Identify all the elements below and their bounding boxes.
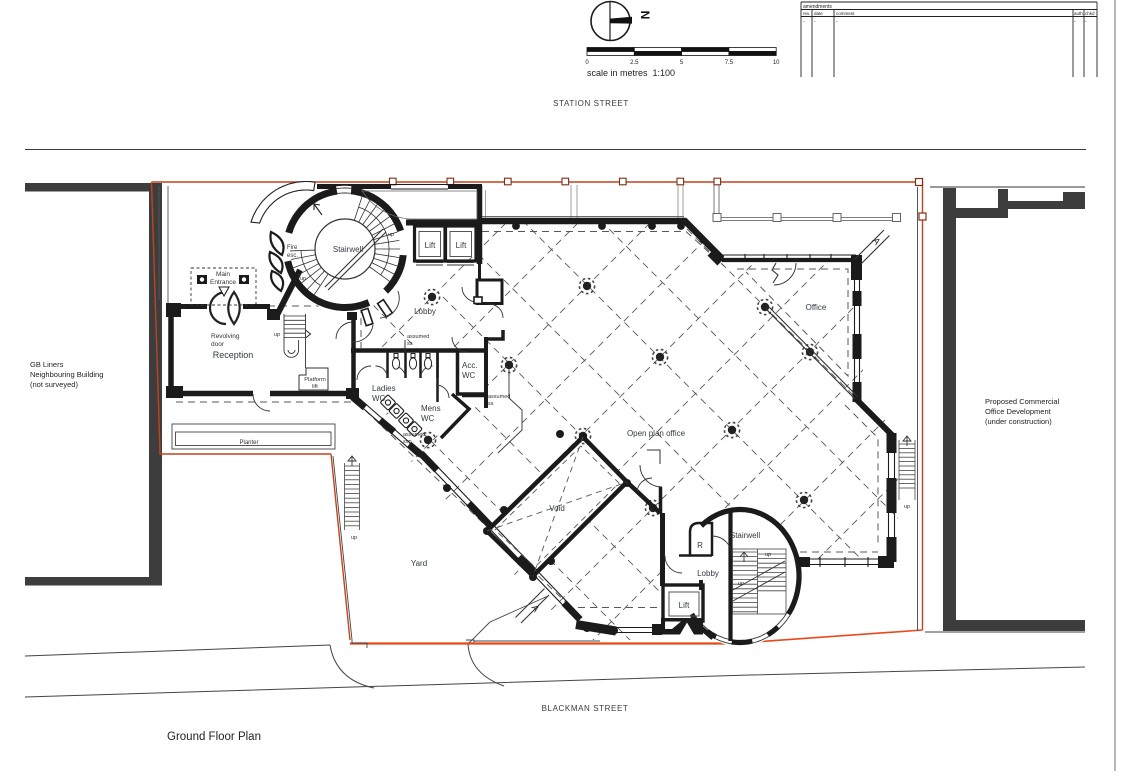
svg-text:date: date bbox=[814, 11, 823, 16]
svg-text:Ground Floor Plan: Ground Floor Plan bbox=[167, 731, 261, 743]
svg-text:10: 10 bbox=[773, 60, 780, 66]
svg-text:Office: Office bbox=[806, 303, 827, 312]
svg-text:esc.: esc. bbox=[287, 253, 298, 259]
svg-text:up: up bbox=[738, 581, 744, 587]
svg-text:auth.: auth. bbox=[1074, 11, 1084, 16]
svg-text:up: up bbox=[351, 535, 357, 541]
svg-text:Platform: Platform bbox=[304, 377, 326, 383]
svg-text:assumed: assumed bbox=[403, 432, 425, 438]
svg-text:comment: comment bbox=[836, 11, 855, 16]
svg-text:Office Development: Office Development bbox=[985, 407, 1052, 416]
svg-text:up: up bbox=[765, 552, 771, 558]
svg-text:WC: WC bbox=[462, 371, 476, 380]
svg-text:amendments: amendments bbox=[803, 4, 832, 10]
svg-text:Void: Void bbox=[549, 504, 565, 513]
svg-text:Neighbouring Building: Neighbouring Building bbox=[30, 370, 103, 379]
svg-text:up: up bbox=[274, 332, 280, 338]
svg-text:2.5: 2.5 bbox=[630, 60, 639, 66]
svg-text:Ladies: Ladies bbox=[372, 384, 396, 393]
svg-text:assumed: assumed bbox=[407, 334, 429, 340]
svg-text:ss: ss bbox=[488, 401, 494, 407]
svg-text:Main: Main bbox=[216, 271, 230, 278]
svg-text:STATION STREET: STATION STREET bbox=[553, 99, 629, 108]
svg-text:up: up bbox=[388, 232, 394, 238]
svg-text:Fire: Fire bbox=[287, 245, 298, 251]
svg-text:Lobby: Lobby bbox=[414, 307, 436, 316]
svg-text:R: R bbox=[697, 541, 703, 550]
svg-text:Mens: Mens bbox=[421, 404, 441, 413]
svg-text:Planter: Planter bbox=[239, 440, 258, 446]
svg-text:Lift: Lift bbox=[679, 601, 690, 610]
svg-text:chkd: chkd bbox=[1085, 11, 1095, 16]
svg-text:up: up bbox=[904, 504, 910, 510]
svg-text:svp: svp bbox=[403, 439, 412, 445]
svg-text:WC: WC bbox=[372, 394, 386, 403]
svg-text:(not surveyed): (not surveyed) bbox=[30, 380, 78, 389]
svg-text:7.5: 7.5 bbox=[725, 60, 734, 66]
svg-text:N: N bbox=[638, 11, 652, 20]
svg-text:ss: ss bbox=[407, 341, 413, 347]
svg-text:Stairwell: Stairwell bbox=[333, 245, 363, 254]
svg-text:Acc.: Acc. bbox=[462, 361, 478, 370]
svg-text:Lobby: Lobby bbox=[697, 569, 719, 578]
svg-text:rev.: rev. bbox=[803, 11, 810, 16]
svg-text:Open plan office: Open plan office bbox=[627, 429, 686, 438]
svg-text:Reception: Reception bbox=[213, 350, 254, 360]
svg-text:Proposed Commercial: Proposed Commercial bbox=[985, 397, 1060, 406]
svg-text:door: door bbox=[211, 341, 225, 348]
svg-text:assumed: assumed bbox=[488, 394, 510, 400]
svg-text:Yard: Yard bbox=[411, 559, 427, 568]
svg-text:scale in metres 1:100: scale in metres 1:100 bbox=[587, 68, 675, 78]
svg-text:Revolving: Revolving bbox=[211, 333, 240, 340]
svg-text:Stairwell: Stairwell bbox=[730, 531, 760, 540]
svg-text:(under construction): (under construction) bbox=[985, 417, 1052, 426]
svg-text:lift: lift bbox=[312, 384, 318, 390]
svg-text:up: up bbox=[300, 276, 306, 282]
svg-text:Lift: Lift bbox=[425, 241, 436, 250]
svg-text:Entrance: Entrance bbox=[210, 279, 236, 286]
svg-text:BLACKMAN STREET: BLACKMAN STREET bbox=[542, 704, 629, 713]
svg-text:WC: WC bbox=[421, 414, 435, 423]
svg-text:Lift: Lift bbox=[456, 241, 467, 250]
svg-text:GB Liners: GB Liners bbox=[30, 360, 64, 369]
